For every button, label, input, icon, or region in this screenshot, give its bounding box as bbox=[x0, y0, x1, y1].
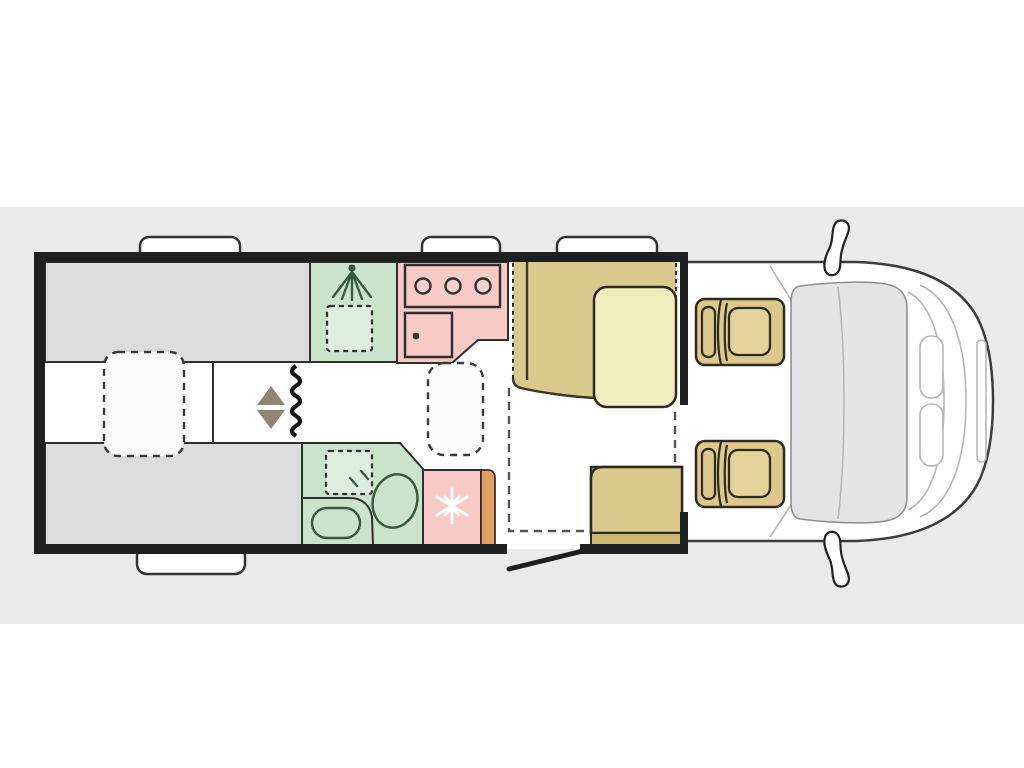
fridge bbox=[423, 470, 495, 545]
hob-burner-1 bbox=[416, 279, 431, 294]
wall-bottom-left bbox=[34, 544, 507, 554]
fridge-side-panel bbox=[481, 470, 495, 545]
bed-bottom bbox=[45, 443, 302, 545]
windshield bbox=[791, 282, 907, 523]
seat-cushion bbox=[729, 450, 770, 497]
folding-element-dashed bbox=[428, 363, 483, 455]
grille-slot bbox=[977, 340, 986, 462]
hob-burner-2 bbox=[446, 279, 461, 294]
travel-bench-seat bbox=[591, 467, 682, 533]
washroom-shower-dashed bbox=[326, 451, 372, 494]
washbasin bbox=[312, 508, 360, 538]
shower-tray-dashed bbox=[327, 306, 372, 351]
shower-head bbox=[348, 264, 355, 271]
cab-seat-top bbox=[696, 299, 784, 365]
floorplan-canvas bbox=[0, 0, 1024, 768]
kitchen-sink bbox=[405, 313, 452, 357]
bed-top bbox=[45, 262, 310, 362]
wall-top bbox=[34, 252, 688, 262]
dinette-table bbox=[594, 287, 676, 407]
washroom bbox=[302, 443, 424, 545]
partition-bottom bbox=[680, 512, 688, 554]
cab-seat-bottom bbox=[696, 441, 784, 507]
partition-top bbox=[680, 256, 688, 405]
shower-room bbox=[310, 262, 397, 362]
motorhome-floorplan bbox=[0, 0, 1024, 768]
seat-cushion bbox=[729, 308, 770, 355]
bed-extension-dashed bbox=[104, 352, 184, 456]
sink-tap bbox=[413, 333, 420, 340]
wall-rear bbox=[34, 252, 45, 554]
hob-burner-3 bbox=[476, 279, 491, 294]
headlight-right bbox=[920, 404, 943, 466]
wall-bottom-right bbox=[580, 544, 688, 554]
headlight-left bbox=[920, 336, 943, 398]
